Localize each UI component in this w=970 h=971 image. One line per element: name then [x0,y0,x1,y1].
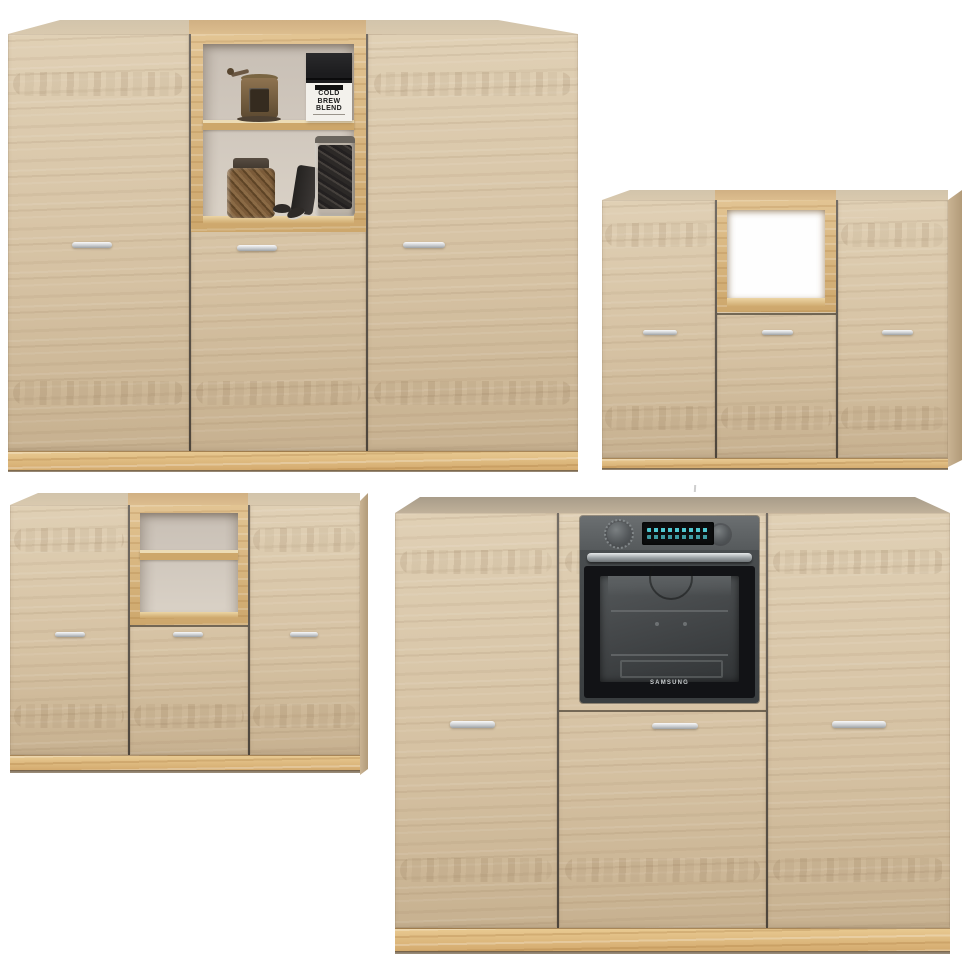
plinth [395,928,950,952]
coffee-bag-top [306,53,352,83]
door-handle-middle [652,723,698,729]
coffee-bag-label: COLD BREW BLEND [306,83,352,121]
door-right [838,200,948,458]
door-left [10,505,128,755]
product-photo-grid: COLD BREW BLEND [0,0,970,971]
oven-display [642,522,714,545]
plinth [10,755,360,771]
niche-floor [140,612,238,618]
coffee-grinder-knob [227,68,234,75]
niche-sill [727,298,825,307]
open-shelf-niche-interior: COLD BREW BLEND [203,44,354,224]
oven-tray [620,660,723,678]
product-photo-cabinet-empty-shelves [10,493,368,777]
samsung-logo: SAMSUNG [584,680,755,686]
coffee-bag: COLD BREW BLEND [306,53,352,121]
door-handle-middle [237,245,277,251]
oven-rack-line [611,654,728,656]
door-handle-right [403,242,445,248]
stray-mark [694,485,696,492]
cookie-jar-rim [315,136,355,143]
door-left [602,200,715,458]
coffee-grinder-base [237,116,281,122]
cabinet-side-panel [948,190,962,467]
door-handle-left [450,721,495,728]
coffee-bag-rule [313,114,345,115]
niche-top-cap [128,493,248,505]
coffee-bag-text-line3: BLEND [316,105,342,113]
cabinet-top-surface [395,497,950,514]
shelf [140,550,238,560]
open-niche-frame [717,200,836,312]
floor-shadow [602,468,948,470]
coffee-grinder-window [249,88,269,112]
plinth [8,451,578,471]
cookie-jar-contents [318,145,352,209]
door-handle-right [882,330,913,335]
oven-knob-left [607,522,631,546]
cookie-jar [315,136,355,216]
oven-display-segments [647,535,709,539]
door-right [368,34,578,451]
door-right [250,505,360,755]
coffee-grinder [241,78,278,118]
cabinet-side-panel [360,493,368,775]
oven-glass-reflection [600,576,739,682]
coffee-bag-text-line1: COLD [318,90,339,98]
door-handle-right [290,632,318,637]
door-handle-left [643,330,677,335]
niche-top-cap [715,190,836,200]
open-shelf-niche-frame [130,505,248,625]
oven-door-handle [587,553,752,562]
oven-control-panel [580,516,759,550]
oven-door-glass: SAMSUNG [584,566,755,698]
open-shelf-niche-frame: COLD BREW BLEND [191,34,366,232]
built-in-oven: SAMSUNG [580,516,759,703]
coffee-bag-fold [306,78,352,80]
product-photo-cabinet-built-in-oven: SAMSUNG [395,497,950,957]
coffee-bag-text-line2: BREW [318,98,341,106]
door-top-line [717,313,836,315]
product-photo-cabinet-styled-shelves: COLD BREW BLEND [8,20,578,472]
oven-rack-line [611,610,728,612]
product-photo-cabinet-open-niche [602,190,962,470]
floor-shadow [8,470,578,472]
door-top-line [559,710,766,712]
floor-shadow [395,951,950,954]
door-top-line [130,625,248,627]
oven-display-segments [647,528,709,532]
door-handle-middle [762,330,793,335]
door-handle-left [72,242,112,248]
niche-top-cap [189,20,366,34]
glass-dot [655,622,659,626]
open-shelf-niche-interior [140,513,238,618]
shelf [203,120,354,130]
door-handle-right [832,721,886,728]
nut-jar [227,168,275,218]
floor-shadow [10,770,360,773]
door-handle-middle [173,632,203,637]
open-niche-interior [727,210,825,298]
niche-floor [203,216,354,224]
door-handle-left [55,632,85,637]
glass-dot [683,622,687,626]
